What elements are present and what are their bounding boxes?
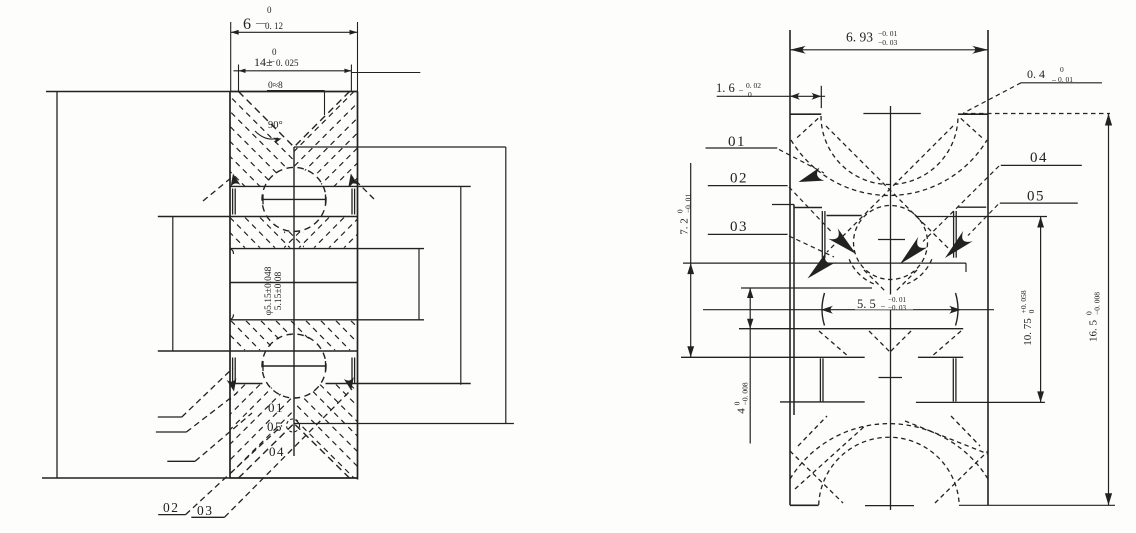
svg-text:−0. 01: −0. 01 [888,296,906,304]
svg-text:03: 03 [730,219,748,235]
svg-text:02: 02 [163,500,180,515]
svg-text:10. 75: 10. 75 [1022,318,1034,346]
svg-text:–: – [269,56,275,66]
svg-text:−0. 03: −0. 03 [878,38,897,47]
svg-text:0≈8: 0≈8 [268,81,283,91]
svg-text:−0. 01: −0. 01 [878,29,897,38]
svg-text:−0. 01: −0. 01 [684,194,693,213]
svg-text:0: 0 [1027,309,1036,313]
svg-text:0. 025: 0. 025 [276,58,299,68]
svg-text:0. 4: 0. 4 [1027,67,1045,81]
svg-text:04: 04 [1030,150,1048,166]
svg-text:−0. 008: −0. 008 [1093,292,1102,315]
svg-text:0. 12: 0. 12 [265,21,283,31]
svg-text:−0. 03: −0. 03 [888,304,906,312]
svg-text:φ5.15±0.048: φ5.15±0.048 [264,266,274,315]
svg-text:5. 5: 5. 5 [857,297,876,311]
svg-text:7. 2: 7. 2 [679,218,691,235]
svg-text:−0. 008: −0. 008 [741,382,750,405]
svg-text:4: 4 [736,408,748,414]
svg-text:90°: 90° [268,120,283,131]
svg-text:16. 5: 16. 5 [1088,320,1100,343]
svg-text:6. 93: 6. 93 [846,30,873,45]
svg-text:0: 0 [267,5,272,15]
svg-text:1. 6: 1. 6 [716,81,735,95]
svg-text:04: 04 [269,444,285,459]
svg-text:0. 02: 0. 02 [746,81,761,90]
svg-text:0: 0 [1060,65,1064,74]
svg-text:5.15±0.08: 5.15±0.08 [274,272,284,311]
svg-text:01: 01 [268,400,284,415]
svg-text:02: 02 [730,171,748,187]
svg-text:05: 05 [1027,189,1045,205]
svg-text:0: 0 [748,90,752,99]
svg-text:6: 6 [243,16,251,33]
svg-text:03: 03 [197,503,214,518]
